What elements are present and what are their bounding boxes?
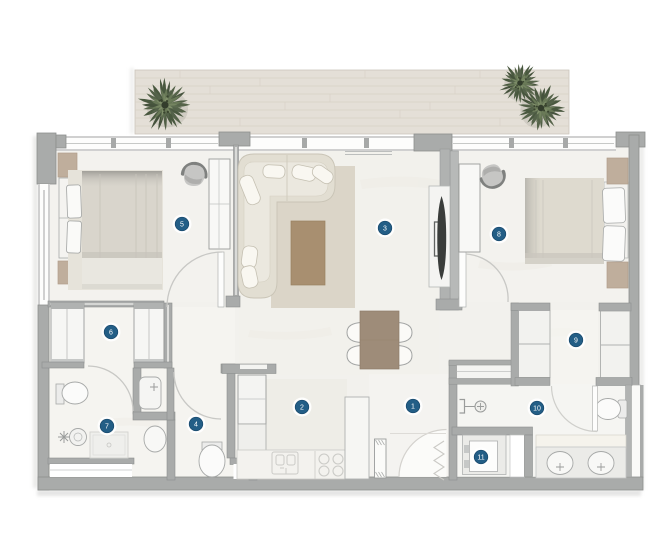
svg-text:2: 2	[300, 404, 304, 411]
svg-text:9: 9	[574, 337, 578, 344]
svg-text:8: 8	[497, 231, 501, 238]
svg-text:3: 3	[383, 225, 387, 232]
svg-text:10: 10	[533, 405, 541, 412]
svg-text:1: 1	[411, 403, 415, 410]
svg-text:7: 7	[105, 423, 109, 430]
svg-text:5: 5	[180, 221, 184, 228]
svg-text:11: 11	[477, 454, 484, 461]
svg-text:6: 6	[109, 329, 113, 336]
svg-text:4: 4	[194, 421, 198, 428]
